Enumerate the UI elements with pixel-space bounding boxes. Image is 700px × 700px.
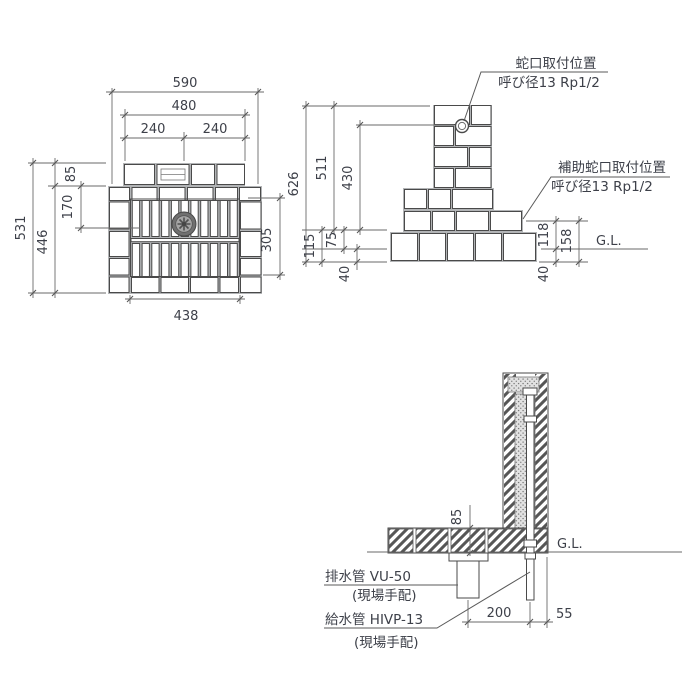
dim-elev-base-above-gl: 75 <box>325 232 340 249</box>
dim-plan-overall-depth: 531 <box>14 216 29 241</box>
dim-plan-drain-offset: 170 <box>61 195 76 220</box>
section-column-left-wall <box>504 374 516 528</box>
dim-elev-column-height: 511 <box>315 156 330 181</box>
plan-left-border <box>110 202 130 293</box>
faucet-callout-title: 蛇口取付位置 <box>516 56 597 72</box>
elevation-base-row <box>392 234 536 261</box>
supply-pipe-coupling-top <box>524 416 537 422</box>
aux-callout-spec: 呼び径13 Rp1/2 <box>551 179 653 195</box>
aux-callout-title: 補助蛇口取付位置 <box>558 160 666 176</box>
drain-cap-icon <box>172 212 196 236</box>
dim-plan-inner-width: 438 <box>174 309 199 324</box>
drain-pipe <box>449 553 488 598</box>
supply-pipe-cap <box>523 388 537 395</box>
dim-section-supply-to-edge: 55 <box>556 607 573 622</box>
section-view: G.L. 85 200 55 排水管 VU-50 (現場手配) 給水管 HIVP… <box>324 373 682 651</box>
dim-elev-faucet-height: 430 <box>341 166 356 191</box>
drain-pipe-note: (現場手配) <box>352 588 417 604</box>
supply-pipe-name: 給水管 HIVP-13 <box>325 612 423 628</box>
dim-plan-overall-width: 590 <box>173 76 198 91</box>
supply-pipe-coupling-bottom <box>525 553 536 559</box>
technical-drawing-page: 590 480 240 240 531 85 446 <box>0 0 700 700</box>
drain-pipe-body <box>457 561 479 598</box>
supply-pipe-note: (現場手配) <box>354 635 419 651</box>
drain-pipe-label: 排水管 VU-50 (現場手配) <box>324 569 458 604</box>
dim-plan-half-right: 240 <box>203 122 228 137</box>
dim-plan-pan-depth: 446 <box>36 230 51 255</box>
dim-plan-grate-depth: 305 <box>260 228 275 253</box>
dim-section-pan-height: 85 <box>450 509 465 526</box>
ground-label-section: G.L. <box>557 537 583 552</box>
dim-elev-aux-height: 118 <box>537 223 552 248</box>
dim-elev-overall-height: 626 <box>287 172 302 197</box>
plan-right-border <box>241 202 262 293</box>
drain-pipe-name: 排水管 VU-50 <box>325 569 411 585</box>
dim-plan-back-depth: 85 <box>64 166 79 183</box>
section-column-right-wall <box>535 374 547 552</box>
grate-slats-lower <box>132 244 237 277</box>
dim-plan-back-width: 480 <box>172 99 197 114</box>
plan-back-bricks <box>125 165 245 185</box>
dim-elev-base-below-gl: 40 <box>338 266 353 283</box>
elevation-view: 626 511 430 115 75 40 118 40 <box>287 56 670 282</box>
dim-plan-half-left: 240 <box>141 122 166 137</box>
plan-bottom-row <box>132 278 239 293</box>
faucet-callout-spec: 呼び径13 Rp1/2 <box>498 75 600 91</box>
ground-label-elevation: G.L. <box>596 234 622 249</box>
plan-dims-bottom: 438 <box>125 295 245 324</box>
dim-section-drain-to-supply: 200 <box>487 606 512 621</box>
faucet-hole-icon <box>456 120 469 133</box>
supply-pipe-valve <box>524 540 537 547</box>
grate-mid-rail <box>131 239 239 242</box>
aux-faucet-callout: 補助蛇口取付位置 呼び径13 Rp1/2 <box>523 160 670 219</box>
dim-elev-below-gl-right: 40 <box>537 266 552 283</box>
dim-elev-base-total: 115 <box>303 234 318 259</box>
elevation-dims-right: 118 40 158 G.L. <box>526 216 648 282</box>
dim-elev-aux-total: 158 <box>560 229 575 254</box>
aux-faucet-brick <box>491 212 522 231</box>
supply-pipe-body <box>527 395 535 600</box>
plan-view: 590 480 240 240 531 85 446 <box>14 76 285 324</box>
technical-drawing-canvas: 590 480 240 240 531 85 446 <box>0 0 700 700</box>
